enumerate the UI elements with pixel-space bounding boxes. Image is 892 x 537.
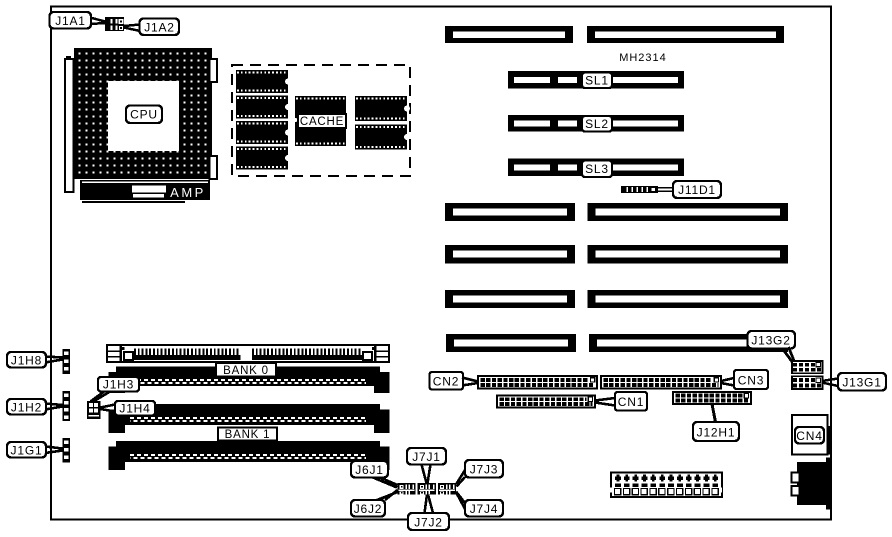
svg-text:CN4: CN4 bbox=[796, 429, 822, 443]
svg-text:BANK 0: BANK 0 bbox=[223, 365, 269, 377]
svg-text:J1G1: J1G1 bbox=[11, 444, 43, 458]
svg-text:CN1: CN1 bbox=[618, 395, 644, 409]
svg-text:J13G1: J13G1 bbox=[842, 376, 881, 390]
svg-text:J7J4: J7J4 bbox=[470, 502, 499, 516]
svg-text:J11D1: J11D1 bbox=[678, 183, 716, 197]
svg-text:CPU: CPU bbox=[130, 108, 158, 122]
svg-text:SL3: SL3 bbox=[585, 162, 609, 176]
svg-text:CACHE: CACHE bbox=[300, 116, 344, 128]
svg-text:J7J1: J7J1 bbox=[412, 450, 441, 464]
svg-text:J1H3: J1H3 bbox=[103, 378, 134, 392]
svg-text:MH2314: MH2314 bbox=[619, 52, 667, 64]
svg-text:CN3: CN3 bbox=[738, 374, 764, 388]
svg-text:J1A2: J1A2 bbox=[144, 21, 175, 35]
svg-text:SL2: SL2 bbox=[585, 117, 609, 131]
svg-text:J1H2: J1H2 bbox=[11, 401, 42, 415]
svg-text:J6J1: J6J1 bbox=[355, 463, 384, 477]
svg-text:J1H8: J1H8 bbox=[11, 354, 42, 368]
svg-text:CN2: CN2 bbox=[433, 375, 459, 389]
svg-text:J1A1: J1A1 bbox=[55, 14, 86, 28]
svg-text:J12H1: J12H1 bbox=[697, 426, 736, 440]
svg-text:J13G2: J13G2 bbox=[751, 334, 790, 348]
svg-text:J7J2: J7J2 bbox=[414, 516, 443, 530]
svg-text:SL1: SL1 bbox=[585, 74, 609, 88]
svg-text:J6J2: J6J2 bbox=[354, 502, 383, 516]
svg-text:BANK 1: BANK 1 bbox=[225, 429, 271, 441]
svg-text:J1H4: J1H4 bbox=[119, 402, 150, 416]
svg-text:AMP: AMP bbox=[170, 185, 206, 200]
svg-text:J7J3: J7J3 bbox=[470, 463, 499, 477]
